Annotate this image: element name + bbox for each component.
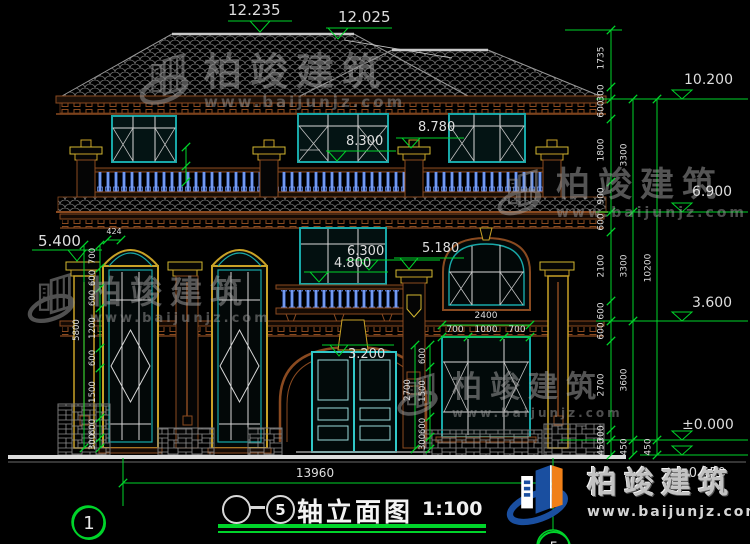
elevation-label-2f: 3.600: [692, 296, 732, 310]
elevation-label-3f: 6.900: [692, 185, 732, 199]
dim-label: 300: [598, 84, 607, 101]
dim-label: 3600: [621, 369, 630, 392]
dim-label: 600: [89, 290, 98, 306]
mid-left-pilaster: [168, 262, 202, 448]
canopy-cornice-2: [56, 197, 608, 228]
elevation-label-pilaster-top: 8.780: [418, 121, 455, 134]
elevation-label-roof-right: 12.025: [338, 10, 391, 25]
building-roof: [62, 34, 600, 96]
axis-number: 5: [550, 540, 559, 544]
second-floor-center: [276, 228, 404, 322]
brand-url: www.baijunjz.com: [587, 505, 750, 519]
dim-label: 2100: [598, 255, 607, 278]
cad-elevation-sheet: 柏竣建筑 www.baijunjz.com 柏竣建筑 www.baijunjz.…: [0, 0, 750, 544]
dim-label: 450: [621, 438, 630, 455]
balcony-balustrade-3f: [95, 168, 560, 197]
dim-label: 450: [598, 438, 607, 455]
dim-label: 900: [598, 187, 607, 204]
elevation-label-eave: 10.200: [684, 73, 733, 87]
dim-label: 1800: [598, 139, 607, 162]
dim-label: 700: [89, 248, 98, 264]
title-axis-dash: [250, 506, 265, 509]
dim-label: 700: [508, 326, 525, 335]
brand-logo: 柏竣建筑 www.baijunjz.com: [505, 456, 750, 532]
elevation-label-capital-right: 5.180: [422, 242, 459, 255]
title-underline-thin: [218, 531, 486, 533]
elevation-label-door-head: 3.200: [348, 348, 385, 361]
dim-label: 600: [598, 302, 607, 319]
dim-label: 600: [419, 418, 428, 434]
title-axis-start-circle: [222, 495, 251, 524]
elevation-label-capital-left: 5.400: [38, 234, 81, 249]
right-window-1f: [436, 337, 536, 442]
dim-label: 600: [419, 348, 428, 364]
elevation-label-balcony-2f: 4.800: [334, 257, 371, 270]
dim-label-arch: 424: [106, 228, 121, 236]
dim-label: 450: [645, 438, 654, 455]
brand-logo-icon: [505, 456, 577, 532]
dim-label: 700: [446, 326, 463, 335]
dim-label: 600: [89, 350, 98, 366]
dim-label: 3300: [621, 144, 630, 167]
right-column: [540, 262, 574, 448]
drawing-scale: 1:100: [422, 498, 482, 520]
dim-label-total: 5800: [73, 319, 82, 341]
dim-label: 1200: [89, 317, 98, 339]
dim-label: 600: [598, 213, 607, 230]
dim-label: 300: [89, 434, 98, 450]
dim-label: 10200: [645, 254, 654, 283]
elevation-label-window-head-3f: 8.300: [346, 135, 383, 148]
dim-label: 3300: [621, 255, 630, 278]
dim-label-overall-width: 13960: [296, 467, 334, 479]
dim-label: 2700: [598, 374, 607, 397]
title-axis-end-circle: 5: [266, 495, 295, 524]
brand-name: 柏竣建筑: [587, 469, 750, 499]
dim-label: 600: [89, 419, 98, 435]
tall-window-right: [208, 250, 271, 453]
dim-label: 600: [89, 270, 98, 286]
axis-number: 5: [275, 501, 285, 519]
elevation-label-roof-left: 12.235: [228, 3, 281, 18]
dim-label: 1500: [419, 380, 428, 402]
dim-label: 600: [598, 322, 607, 339]
axis-bubble-1: 1: [72, 506, 106, 540]
dim-label: 1735: [598, 47, 607, 70]
building-eave-cornice: [56, 96, 606, 114]
dim-label: 300: [419, 434, 428, 450]
dim-label-window-total: 2400: [475, 312, 498, 321]
title-underline-thick: [218, 524, 486, 528]
elevation-label-ground: ±0.000: [682, 418, 734, 432]
axis-number: 1: [83, 513, 94, 534]
dim-label: 1000: [475, 326, 498, 335]
dim-label: 1500: [89, 381, 98, 403]
dim-label-total: 2700: [404, 379, 413, 401]
dim-label: 600: [598, 100, 607, 117]
